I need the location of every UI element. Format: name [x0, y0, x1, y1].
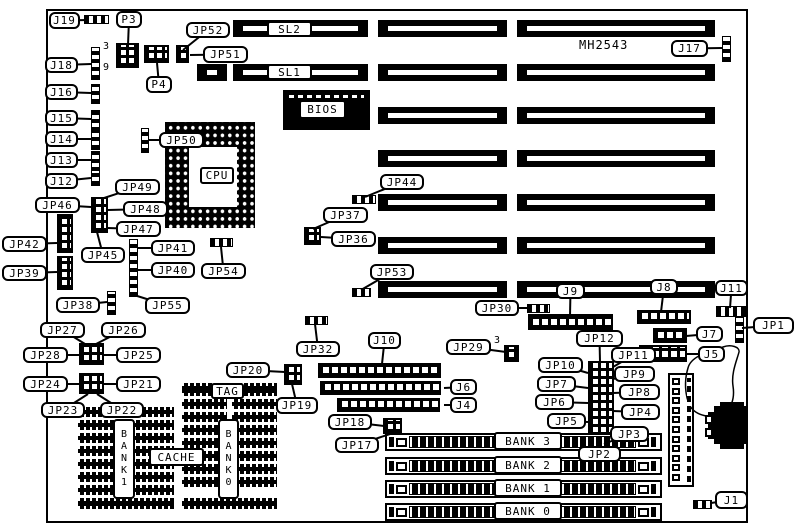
power-connector-pin	[672, 426, 680, 433]
jp38-pins	[107, 291, 116, 315]
motherboard-diagram: J19P3JP52JP51J18J16J15J14J13J12P4JP50JP4…	[0, 0, 797, 528]
callout-jp9: JP9	[614, 366, 655, 382]
plate-bank-2: BANK 2	[494, 456, 562, 474]
bios-socket-dash	[289, 95, 364, 98]
jp21-jp24-pin-block	[79, 373, 104, 394]
plate-sl1: SL1	[267, 64, 312, 80]
callout-jp1: JP1	[753, 317, 794, 334]
expansion-slot-segment	[517, 237, 715, 254]
j8-socket	[637, 310, 691, 324]
keyboard-din-connector	[720, 402, 744, 407]
jp50-pins	[141, 128, 149, 153]
j12-pins	[91, 170, 100, 186]
plate-bios: BIOS	[299, 100, 346, 119]
callout-j13: J13	[45, 152, 78, 168]
jp39-pins	[57, 256, 73, 290]
callout-j10: J10	[368, 332, 401, 349]
plate-bank-1: BANK 1	[494, 479, 562, 497]
callout-jp36: JP36	[331, 231, 376, 247]
power-connector-pin	[672, 397, 680, 404]
plate-bank-3: BANK 3	[494, 432, 562, 450]
jp30-pins	[527, 304, 550, 313]
plate-bank-0: BANK 0	[494, 502, 562, 520]
jp54-pins	[210, 238, 233, 247]
plate-sl2: SL2	[267, 21, 312, 37]
jp25-jp28-pin-block	[79, 343, 104, 365]
jp41-jp40-jp55-pins	[129, 239, 138, 297]
expansion-slot-segment	[378, 107, 507, 124]
jp17-jp18-pins	[383, 418, 402, 434]
expansion-slot-segment	[378, 194, 507, 211]
plate-tag: TAG	[211, 383, 244, 399]
callout-jp45: JP45	[81, 247, 125, 263]
callout-jp27: JP27	[40, 322, 85, 338]
callout-jp32: JP32	[296, 341, 340, 357]
callout-jp22: JP22	[100, 402, 144, 418]
plate-cache: CACHE	[149, 448, 204, 466]
callout-j11: J11	[715, 280, 748, 296]
callout-jp42: JP42	[2, 236, 47, 252]
callout-jp5: JP5	[547, 413, 586, 429]
power-connector-pin	[672, 388, 680, 395]
cache-bank0-chips	[182, 498, 277, 509]
callout-jp51: JP51	[203, 46, 248, 63]
callout-j5: J5	[698, 346, 725, 362]
jp51-jp52-pins	[176, 45, 189, 63]
power-connector-pin	[672, 436, 680, 443]
jp36-jp37-pins	[304, 227, 321, 245]
plate-bank1: BANK1	[113, 419, 135, 499]
callout-j18: J18	[45, 57, 78, 73]
expansion-slot-segment	[517, 150, 715, 167]
j14-pins	[91, 131, 100, 150]
j10-socket	[318, 363, 441, 378]
j9-socket	[528, 314, 613, 330]
p3-pin9-number: 9	[103, 62, 110, 73]
simm-slot-bank-3-latch-left	[396, 438, 407, 447]
callout-jp41: JP41	[151, 240, 195, 256]
callout-jp40: JP40	[151, 262, 195, 278]
callout-j4: J4	[450, 397, 477, 413]
callout-jp2: JP2	[578, 446, 621, 462]
p3-pin3-number: 3	[103, 41, 110, 52]
power-connector-pin	[672, 464, 680, 471]
callout-jp48: JP48	[123, 201, 168, 217]
board-id-text: MH2543	[579, 38, 628, 52]
callout-j7: J7	[696, 326, 723, 342]
simm-slot-bank-2-latch-left	[396, 462, 407, 471]
expansion-slot-segment	[378, 64, 507, 81]
jp44-pins	[352, 195, 376, 204]
cache-bank0-chips	[232, 399, 277, 409]
j18-pins	[91, 47, 100, 80]
p3-pins	[116, 43, 139, 68]
j19-pins	[84, 15, 109, 24]
j4-socket	[337, 398, 440, 412]
callout-jp47: JP47	[116, 221, 161, 237]
callout-jp4: JP4	[621, 404, 660, 420]
j11-pins	[716, 306, 746, 317]
simm-slot-bank-1-latch-right	[638, 485, 649, 494]
callout-jp52: JP52	[186, 22, 230, 38]
power-connector-pin	[672, 378, 680, 385]
expansion-slot-segment	[517, 64, 715, 81]
jp29-pin3-number: 3	[494, 335, 501, 346]
callout-j14: J14	[45, 131, 78, 147]
callout-j15: J15	[45, 110, 78, 126]
simm-slot-bank-0-bracket-right	[651, 507, 656, 517]
j1-pins	[693, 500, 712, 509]
expansion-slot-segment	[517, 281, 715, 298]
callout-jp38: JP38	[56, 297, 100, 313]
expansion-slot-segment	[378, 20, 507, 37]
simm-slot-bank-0-bracket-left	[389, 507, 394, 517]
jp19-jp20-pins	[284, 364, 302, 385]
cache-bank0-chips	[182, 399, 227, 409]
callout-jp37: JP37	[323, 207, 368, 223]
callout-jp8: JP8	[619, 384, 660, 400]
simm-slot-bank-1-bracket-right	[651, 484, 656, 494]
callout-jp29: JP29	[446, 339, 491, 355]
callout-jp18: JP18	[328, 414, 372, 430]
callout-jp55: JP55	[145, 297, 190, 314]
j17-pins	[722, 36, 731, 62]
callout-jp19: JP19	[276, 397, 318, 414]
jp1-pins	[735, 317, 744, 343]
j13-pins	[91, 151, 100, 172]
callout-jp49: JP49	[115, 179, 160, 195]
callout-jp50: JP50	[159, 132, 204, 148]
callout-jp7: JP7	[537, 376, 576, 392]
power-connector-key	[687, 378, 691, 482]
keyboard-din-connector	[720, 444, 744, 449]
keyboard-din-tab	[705, 428, 713, 437]
callout-jp10: JP10	[538, 357, 583, 373]
j7-socket	[653, 328, 687, 343]
callout-j17: J17	[671, 40, 708, 57]
callout-p3: P3	[116, 11, 142, 28]
power-connector-pin	[672, 416, 680, 423]
simm-slot-bank-3-bracket-right	[651, 437, 656, 447]
callout-j9: J9	[556, 283, 585, 299]
callout-j6: J6	[450, 379, 477, 395]
callout-jp46: JP46	[35, 197, 80, 213]
simm-slot-bank-2-bracket-left	[389, 461, 394, 471]
jp29-pins	[504, 345, 519, 362]
callout-jp20: JP20	[226, 362, 270, 378]
callout-jp39: JP39	[2, 265, 47, 281]
j6-socket	[320, 381, 441, 395]
callout-jp26: JP26	[101, 322, 146, 338]
callout-j1: J1	[715, 491, 748, 509]
callout-jp25: JP25	[116, 347, 161, 363]
callout-j12: J12	[45, 173, 78, 189]
simm-slot-bank-2-bracket-right	[651, 461, 656, 471]
callout-jp24: JP24	[23, 376, 68, 392]
callout-jp21: JP21	[116, 376, 161, 392]
callout-jp28: JP28	[23, 347, 68, 363]
plate-cpu: CPU	[200, 167, 234, 184]
simm-slot-bank-0-latch-left	[396, 508, 407, 517]
keyboard-din-connector	[714, 406, 748, 444]
expansion-slot-segment	[378, 150, 507, 167]
callout-jp3: JP3	[610, 426, 649, 442]
power-connector-pin	[672, 407, 680, 414]
simm-slot-bank-2-latch-right	[638, 462, 649, 471]
expansion-slot-segment	[197, 64, 227, 81]
power-connector-pin	[672, 455, 680, 462]
callout-jp53: JP53	[370, 264, 414, 280]
expansion-slot-segment	[517, 20, 715, 37]
p4-pins	[144, 45, 169, 63]
plate-bank0: BANK0	[218, 419, 239, 499]
simm-slot-bank-1-bracket-left	[389, 484, 394, 494]
callout-p4: P4	[146, 76, 172, 93]
simm-slot-bank-0-latch-right	[638, 508, 649, 517]
keyboard-din-tab	[705, 415, 713, 424]
simm-slot-bank-1-latch-left	[396, 485, 407, 494]
expansion-slot-segment	[517, 107, 715, 124]
callout-jp30: JP30	[475, 300, 519, 316]
callout-jp54: JP54	[201, 263, 246, 279]
callout-jp6: JP6	[535, 394, 574, 410]
callout-j8: J8	[650, 279, 678, 295]
cache-bank0-chips	[232, 412, 277, 422]
j16-pins	[91, 84, 100, 104]
callout-j16: J16	[45, 84, 78, 100]
callout-jp44: JP44	[380, 174, 424, 190]
jp53-pins	[352, 288, 371, 297]
expansion-slot-segment	[378, 237, 507, 254]
power-connector-pin	[672, 474, 680, 481]
jp45-jp49-pin-block	[91, 197, 108, 233]
callout-jp23: JP23	[41, 402, 85, 418]
simm-slot-bank-3-bracket-left	[389, 437, 394, 447]
jp32-pins	[305, 316, 328, 325]
callout-jp17: JP17	[335, 437, 379, 453]
jp42-pins	[57, 214, 73, 253]
cache-bank1-chips	[78, 498, 174, 509]
j15-pins	[91, 110, 100, 132]
expansion-slot-segment	[378, 281, 507, 298]
callout-jp12: JP12	[576, 330, 623, 347]
callout-j19: J19	[49, 12, 80, 29]
power-connector-pin	[672, 445, 680, 452]
expansion-slot-segment	[517, 194, 715, 211]
callout-jp11: JP11	[611, 347, 656, 363]
